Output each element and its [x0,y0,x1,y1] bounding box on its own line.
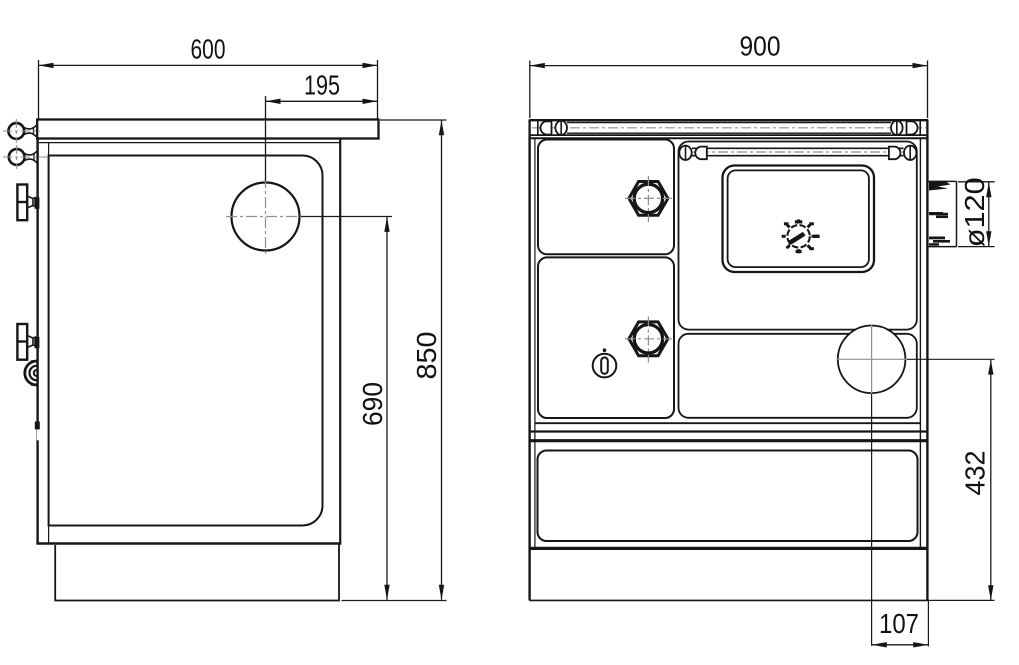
svg-text:600: 600 [191,34,226,65]
svg-text:ø120: ø120 [959,177,990,247]
svg-text:195: 195 [304,70,340,101]
svg-text:900: 900 [740,31,781,62]
svg-text:850: 850 [411,332,442,380]
svg-text:690: 690 [357,382,388,426]
svg-text:107: 107 [879,608,919,639]
svg-text:432: 432 [959,451,990,496]
